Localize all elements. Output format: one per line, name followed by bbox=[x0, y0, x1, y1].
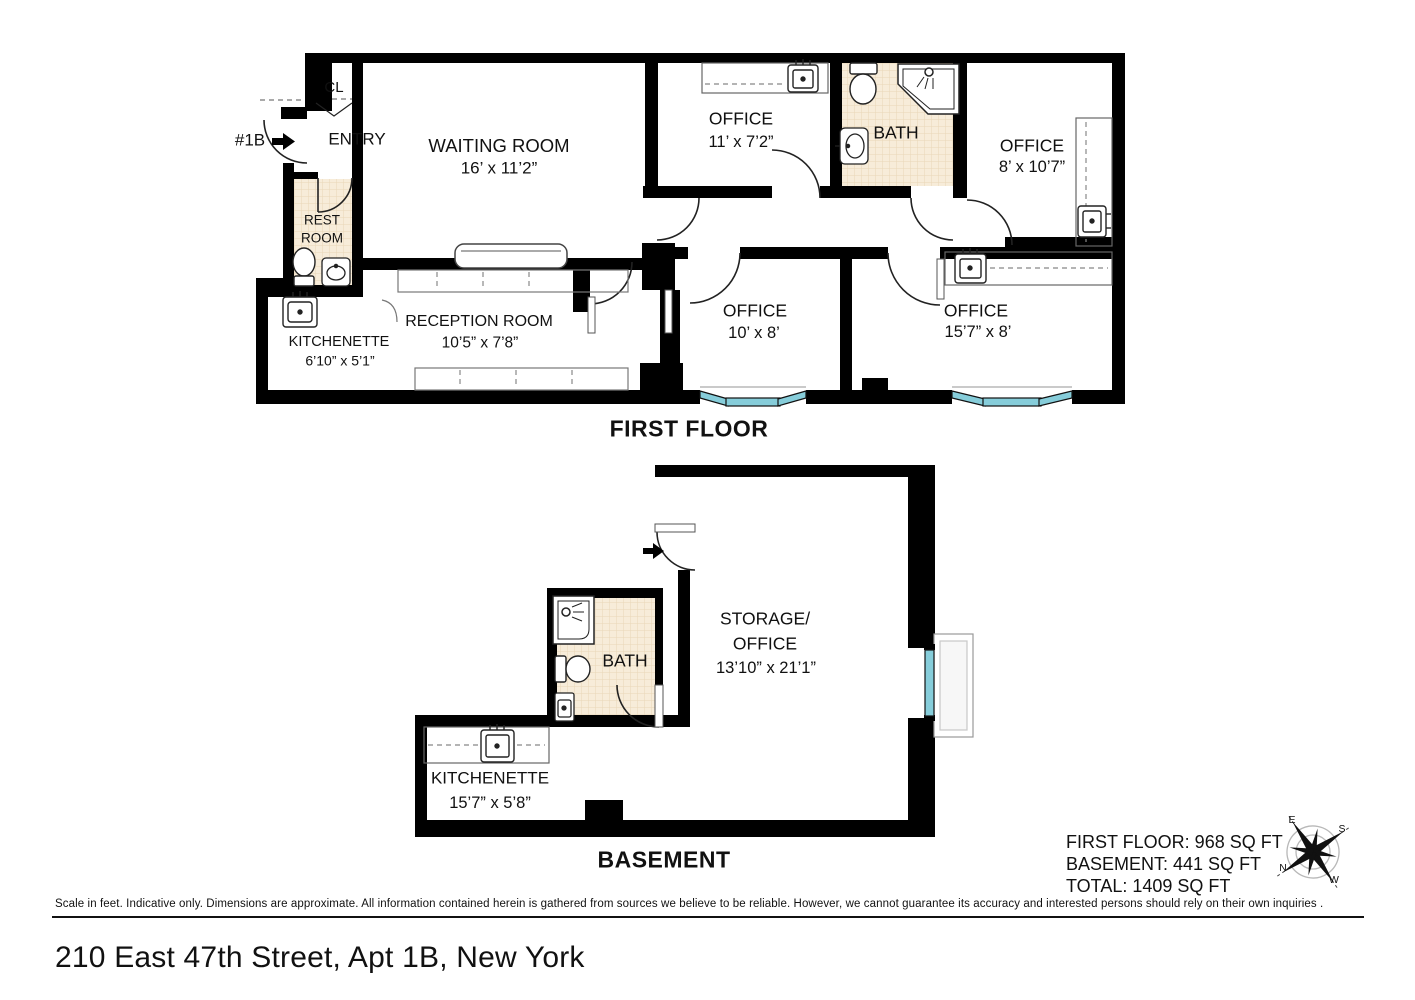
office2-dims: 8’ x 10’7” bbox=[999, 158, 1065, 176]
reception-counter-top bbox=[398, 270, 628, 292]
office4-door-arc bbox=[888, 253, 940, 305]
office1-dims: 11’ x 7’2” bbox=[708, 133, 773, 151]
office3-dims: 10’ x 8’ bbox=[728, 324, 780, 342]
bath-label: BATH bbox=[873, 123, 918, 142]
restroom-toilet-icon bbox=[293, 248, 315, 286]
restroom-sink-icon bbox=[322, 258, 350, 286]
basement-entry-arrow-icon bbox=[643, 543, 664, 559]
basement-bath-label: BATH bbox=[602, 651, 647, 670]
area-summary: FIRST FLOOR: 968 SQ FT BASEMENT: 441 SQ … bbox=[1066, 831, 1283, 897]
hall-door-arc-1 bbox=[657, 198, 699, 240]
basement-bath-sink-icon bbox=[555, 693, 574, 721]
first-floor-title: FIRST FLOOR bbox=[610, 416, 769, 441]
basement-kitchenette-dims: 15’7” x 5’8” bbox=[449, 794, 531, 812]
reception-counter-bottom bbox=[415, 368, 628, 390]
unit-entry-arrow-icon bbox=[272, 133, 295, 150]
kitchenette-counter-curve bbox=[382, 300, 397, 322]
kitchenette-dims: 6’10” x 5’1” bbox=[305, 353, 374, 368]
basement-kitchenette-label: KITCHENETTE bbox=[431, 770, 549, 789]
unit-tag-label: #1B bbox=[235, 132, 265, 151]
storage-office-label-2: OFFICE bbox=[733, 634, 797, 653]
compass-east-label: E bbox=[1288, 815, 1295, 827]
reception-room-label: RECEPTION ROOM bbox=[405, 313, 553, 331]
office4-label: OFFICE bbox=[944, 301, 1008, 320]
bath-toilet-icon bbox=[850, 63, 877, 104]
basement-toilet-icon bbox=[555, 656, 590, 682]
office4-dims: 15’7” x 8’ bbox=[945, 323, 1012, 341]
disclaimer-text: Scale in feet. Indicative only. Dimensio… bbox=[55, 898, 1323, 910]
area-total: TOTAL: 1409 SQ FT bbox=[1066, 875, 1283, 897]
first-floor-walls bbox=[256, 53, 1125, 404]
compass-west-label: W bbox=[1329, 875, 1339, 887]
storage-office-dims: 13’10” x 21’1” bbox=[716, 659, 816, 677]
basement-shower-icon bbox=[553, 596, 594, 644]
office1-sink-icon bbox=[788, 59, 818, 92]
kitchenette-sink-icon bbox=[283, 291, 317, 327]
waiting-room-label: WAITING ROOM bbox=[428, 136, 569, 156]
waiting-room-dims: 16’ x 11’2” bbox=[461, 160, 538, 179]
storage-office-label-1: STORAGE/ bbox=[720, 609, 810, 628]
office2-sink-icon bbox=[1078, 206, 1111, 237]
basement-window bbox=[925, 650, 934, 716]
closet-label: CL bbox=[324, 80, 343, 97]
basement-kitchenette-sink-icon bbox=[481, 724, 514, 762]
rest-room-label-2: ROOM bbox=[301, 232, 343, 247]
bay-window-office4 bbox=[952, 387, 1072, 406]
area-basement: BASEMENT: 441 SQ FT bbox=[1066, 853, 1283, 875]
kitchenette-label: KITCHENETTE bbox=[289, 335, 390, 351]
footer-divider bbox=[52, 916, 1364, 918]
basement-title: BASEMENT bbox=[597, 847, 730, 872]
office3-label: OFFICE bbox=[723, 301, 787, 320]
bay-window-office3 bbox=[700, 387, 806, 406]
address-text: 210 East 47th Street, Apt 1B, New York bbox=[55, 941, 585, 975]
office2-label: OFFICE bbox=[1000, 136, 1064, 155]
bath-door-arc bbox=[911, 198, 953, 240]
office3-door-arc bbox=[690, 253, 740, 303]
office1-label: OFFICE bbox=[709, 109, 773, 128]
area-first-floor: FIRST FLOOR: 968 SQ FT bbox=[1066, 831, 1283, 853]
office1-door-arc bbox=[772, 150, 820, 198]
entry-label: ENTRY bbox=[328, 131, 385, 150]
compass-south-label: S bbox=[1338, 824, 1345, 836]
rest-room-label-1: REST bbox=[304, 214, 340, 229]
bath-sink-icon bbox=[835, 128, 868, 164]
reception-desk bbox=[455, 244, 567, 268]
reception-room-dims: 10’5” x 7’8” bbox=[442, 334, 519, 351]
compass-north-label: N bbox=[1279, 863, 1287, 875]
floorplan-page: CL #1B ENTRY WAITING ROOM 16’ x 11’2” OF… bbox=[0, 0, 1415, 1000]
